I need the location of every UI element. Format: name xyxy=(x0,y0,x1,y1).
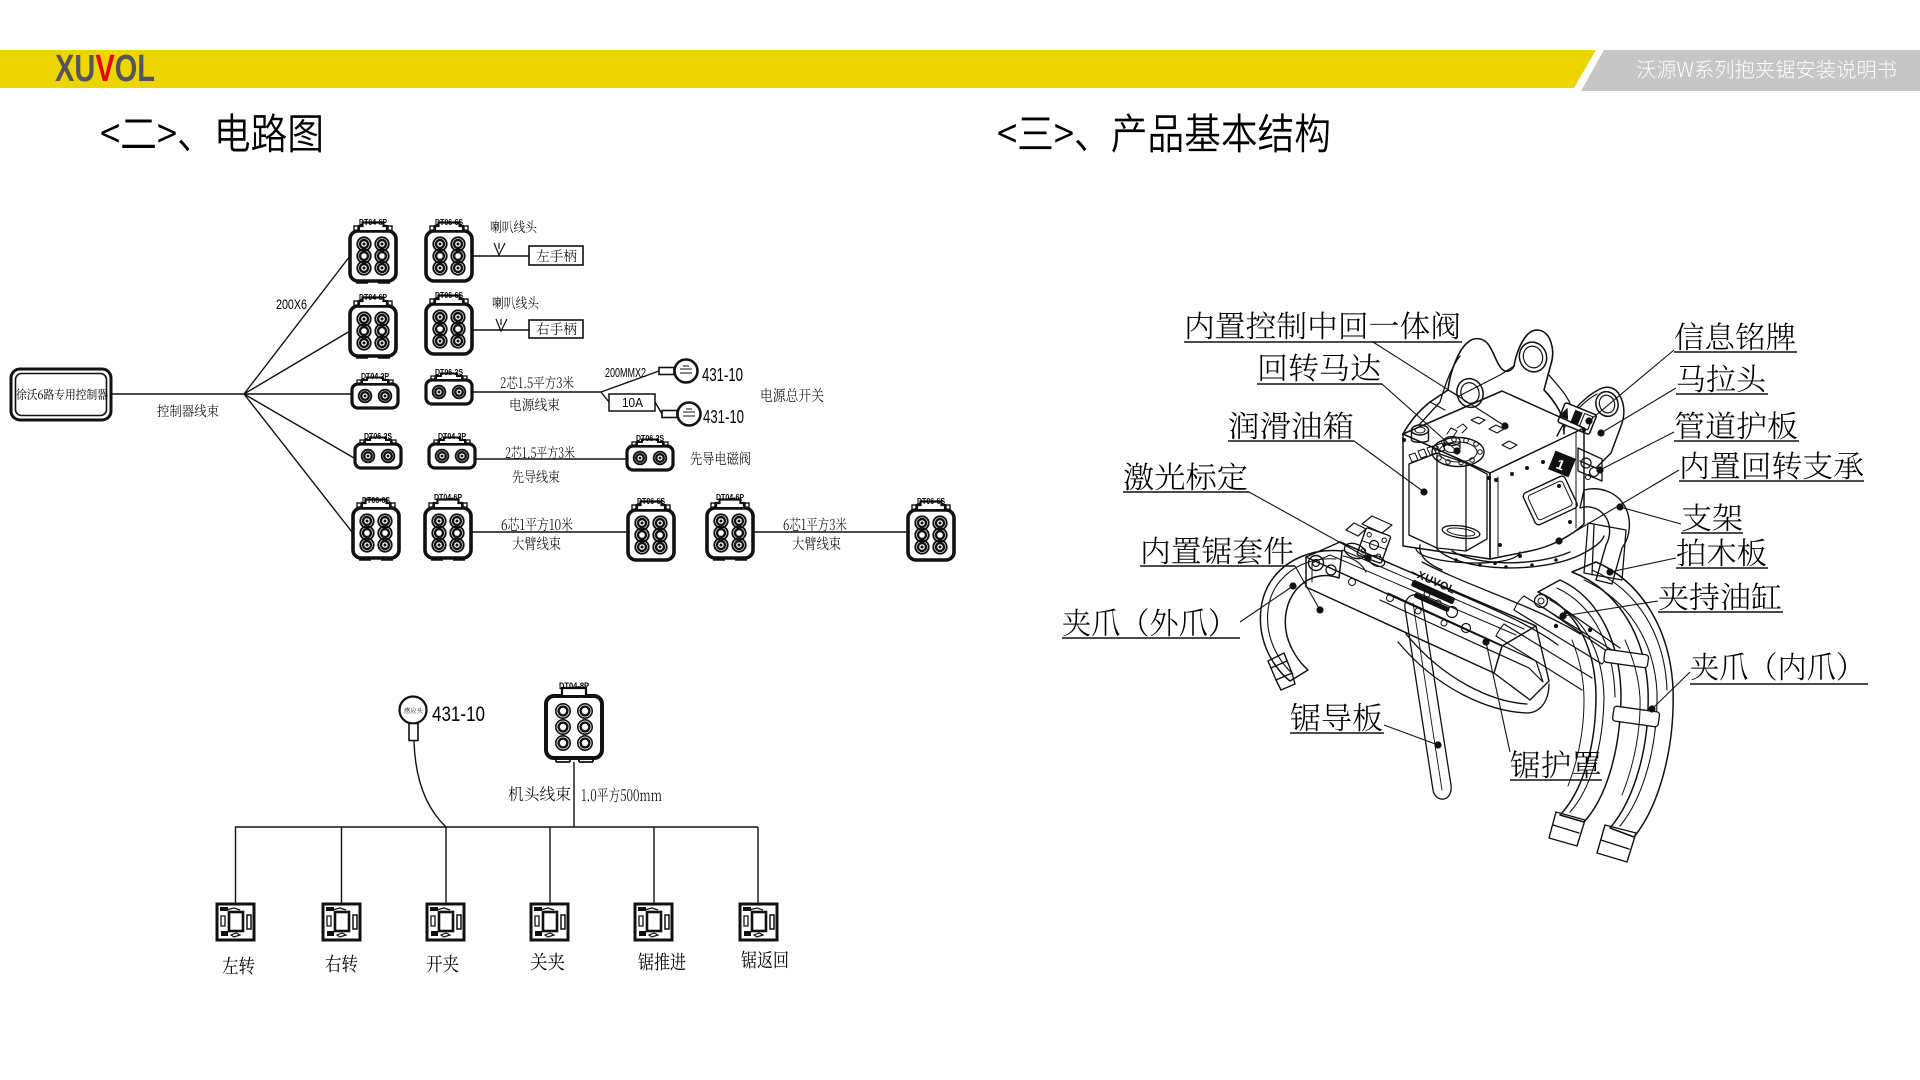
svg-text:DT04-2P: DT04-2P xyxy=(361,372,390,381)
svg-text:DT06-6S: DT06-6S xyxy=(637,497,666,506)
svg-text:DT06-6S: DT06-6S xyxy=(435,218,464,227)
svg-text:200MMX2: 200MMX2 xyxy=(605,366,646,380)
svg-text:200X6: 200X6 xyxy=(276,296,307,312)
svg-text:DT04-6P: DT04-6P xyxy=(716,493,745,502)
svg-text:431-10: 431-10 xyxy=(432,703,485,726)
svg-text:DT06-2S: DT06-2S xyxy=(435,368,464,377)
svg-text:431-10: 431-10 xyxy=(703,407,744,427)
svg-text:DT06-2S: DT06-2S xyxy=(364,432,393,441)
svg-text:DT04-2P: DT04-2P xyxy=(438,432,467,441)
svg-text:DT04-6P: DT04-6P xyxy=(359,218,388,227)
svg-text:DT04-6P: DT04-6P xyxy=(434,493,463,502)
svg-text:431-10: 431-10 xyxy=(702,365,743,385)
svg-text:DT06-6S: DT06-6S xyxy=(435,291,464,300)
svg-text:DT06-2S: DT06-2S xyxy=(636,434,665,443)
svg-text:DT06-6S: DT06-6S xyxy=(917,497,946,506)
svg-text:DT04-8P: DT04-8P xyxy=(559,681,589,691)
svg-text:DT06-6S: DT06-6S xyxy=(362,496,391,505)
svg-text:DT04-6P: DT04-6P xyxy=(359,293,388,302)
svg-text:XUVOL: XUVOL xyxy=(55,48,155,90)
svg-text:10A: 10A xyxy=(622,395,643,410)
